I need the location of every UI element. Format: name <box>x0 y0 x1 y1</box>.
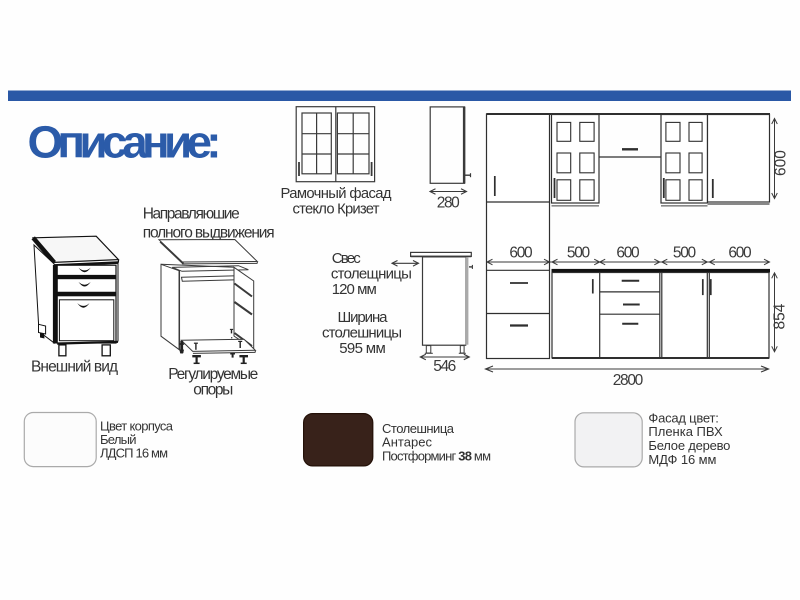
svg-text:500: 500 <box>567 244 591 261</box>
svg-text:ЛДСП 16 мм: ЛДСП 16 мм <box>100 445 168 460</box>
svg-text:опоры: опоры <box>193 382 233 399</box>
svg-text:280: 280 <box>437 195 460 212</box>
svg-text:600: 600 <box>509 244 533 261</box>
svg-text:столещницы: столещницы <box>331 266 412 283</box>
svg-text:Направляюшие: Направляюшие <box>143 206 240 223</box>
svg-text:Ширина: Ширина <box>338 309 389 326</box>
svg-text:полного выдвижения: полного выдвижения <box>143 225 275 242</box>
svg-text:Антарес: Антарес <box>382 434 433 449</box>
svg-text:595 мм: 595 мм <box>339 340 386 357</box>
svg-text:Пленка ПВХ: Пленка ПВХ <box>648 424 723 439</box>
svg-text:Белое дерево: Белое дерево <box>648 438 730 453</box>
svg-text:Рамочный фасад: Рамочный фасад <box>281 186 392 202</box>
svg-text:600: 600 <box>773 150 790 176</box>
svg-text:600: 600 <box>728 244 752 261</box>
svg-text:2800: 2800 <box>613 372 644 389</box>
svg-text:стекло Кризет: стекло Кризет <box>293 201 380 217</box>
svg-text:Регулируемые: Регулируемые <box>168 366 258 383</box>
svg-text:Свес: Свес <box>332 250 362 267</box>
svg-text:546: 546 <box>433 358 456 375</box>
svg-text:500: 500 <box>673 244 697 261</box>
svg-text:600: 600 <box>616 244 640 261</box>
svg-text:Постформинг 38 мм: Постформинг 38 мм <box>382 448 491 463</box>
svg-text:МДФ 16 мм: МДФ 16 мм <box>648 452 716 467</box>
svg-text:Описание:: Описание: <box>28 116 222 167</box>
svg-text:Фасад цвет:: Фасад цвет: <box>648 410 719 425</box>
svg-text:Внешний вид: Внешний вид <box>31 359 118 376</box>
svg-text:120 мм: 120 мм <box>332 281 377 298</box>
svg-text:854: 854 <box>772 303 789 329</box>
